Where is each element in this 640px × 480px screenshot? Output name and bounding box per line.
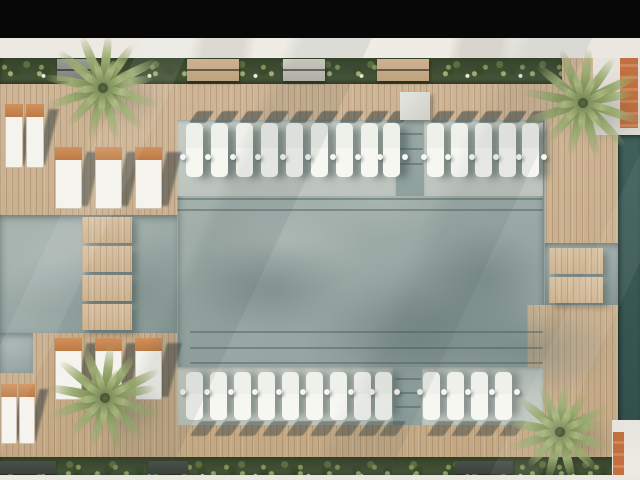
side-table bbox=[394, 389, 400, 395]
palm-crown-center bbox=[98, 83, 108, 93]
pool-step-edge bbox=[190, 362, 543, 364]
pool-lounger bbox=[210, 372, 227, 420]
side-table bbox=[489, 389, 495, 395]
stepping-platform bbox=[82, 304, 132, 330]
side-table bbox=[493, 154, 499, 160]
side-table bbox=[276, 389, 282, 395]
side-table bbox=[205, 154, 211, 160]
pool-water-left-edge bbox=[0, 333, 33, 373]
lounge-chair bbox=[95, 147, 122, 209]
pool-lounger bbox=[423, 372, 440, 420]
pool-step-edge bbox=[190, 347, 543, 349]
pool-lounger bbox=[375, 372, 392, 420]
side-table bbox=[230, 154, 236, 160]
planter-box bbox=[0, 461, 56, 474]
pool-step-edge bbox=[397, 163, 423, 165]
side-table bbox=[465, 389, 471, 395]
stepping-platform bbox=[82, 275, 132, 301]
pool-lounger bbox=[211, 123, 228, 177]
pool-step-edge bbox=[395, 406, 421, 408]
pool-lounger bbox=[236, 123, 253, 177]
chair-headrest bbox=[1, 384, 17, 397]
side-table bbox=[228, 389, 234, 395]
palm-tree bbox=[43, 336, 167, 460]
pool-lounger bbox=[336, 123, 353, 177]
planter-box bbox=[148, 461, 188, 474]
pool-lounger bbox=[475, 123, 492, 177]
pool-lounger bbox=[354, 372, 371, 420]
stepping-platform bbox=[82, 217, 132, 243]
side-table bbox=[348, 389, 354, 395]
stepping-platform bbox=[549, 277, 603, 303]
pool-lounger bbox=[261, 123, 278, 177]
palm-crown-center bbox=[100, 393, 110, 403]
palm-crown-center bbox=[555, 427, 565, 437]
side-table bbox=[441, 389, 447, 395]
palm-tree bbox=[41, 26, 165, 150]
bench-seam bbox=[283, 69, 325, 71]
chair-headrest bbox=[19, 384, 35, 397]
marble-walkway-bottom bbox=[0, 475, 640, 480]
pool-lounger bbox=[447, 372, 464, 420]
planter-bench bbox=[187, 59, 239, 81]
pool-lounger bbox=[234, 372, 251, 420]
lounge-chair bbox=[5, 104, 23, 168]
side-table bbox=[300, 389, 306, 395]
pool-lounger bbox=[311, 123, 328, 177]
pool-lounger bbox=[499, 123, 516, 177]
pool-lounger bbox=[427, 123, 444, 177]
side-table bbox=[330, 154, 336, 160]
palm-crown-center bbox=[578, 98, 588, 108]
lounge-chair bbox=[1, 384, 17, 444]
stepping-platform bbox=[549, 248, 603, 274]
side-table bbox=[469, 154, 475, 160]
side-table bbox=[355, 154, 361, 160]
pool-step-edge bbox=[397, 148, 423, 150]
side-table bbox=[180, 389, 186, 395]
side-table bbox=[252, 389, 258, 395]
lounge-chair bbox=[19, 384, 35, 444]
lounge-chair bbox=[135, 147, 162, 209]
pool-lounger bbox=[282, 372, 299, 420]
side-table bbox=[445, 154, 451, 160]
chair-headrest bbox=[5, 104, 23, 117]
pool-aerial-render bbox=[0, 0, 640, 480]
pool-lounger bbox=[361, 123, 378, 177]
bench-seam bbox=[377, 69, 429, 71]
side-table bbox=[324, 389, 330, 395]
pool-step-edge bbox=[190, 331, 543, 333]
pool-lounger bbox=[258, 372, 275, 420]
side-table bbox=[180, 154, 186, 160]
palm-tree bbox=[519, 39, 640, 167]
side-table bbox=[369, 389, 375, 395]
pool-entry-steps-top bbox=[396, 120, 424, 196]
lounge-chair bbox=[55, 147, 82, 209]
pool-lounger bbox=[471, 372, 488, 420]
side-table bbox=[402, 154, 408, 160]
pool-lounger bbox=[330, 372, 347, 420]
stepping-platform bbox=[82, 246, 132, 272]
planter-bench bbox=[283, 59, 325, 81]
pool-lounger bbox=[186, 123, 203, 177]
pool-lounger bbox=[186, 372, 203, 420]
side-table bbox=[377, 154, 383, 160]
pool-lounger bbox=[383, 123, 400, 177]
letterbox-bar bbox=[0, 0, 640, 38]
pool-step-edge bbox=[397, 133, 423, 135]
reflecting-channel bbox=[618, 135, 640, 425]
side-table bbox=[255, 154, 261, 160]
pool-step-edge bbox=[177, 209, 543, 211]
side-table bbox=[417, 389, 423, 395]
bench-seam bbox=[187, 69, 239, 71]
side-table bbox=[305, 154, 311, 160]
side-table bbox=[280, 154, 286, 160]
pool-lounger bbox=[306, 372, 323, 420]
side-table bbox=[204, 389, 210, 395]
side-table bbox=[421, 154, 427, 160]
pool-lounger bbox=[286, 123, 303, 177]
pool-step-edge bbox=[395, 378, 421, 380]
palm-tree bbox=[504, 376, 616, 480]
planter-bench bbox=[377, 59, 429, 81]
towel-station bbox=[400, 92, 430, 120]
pool-step-edge bbox=[177, 198, 543, 200]
pool-lounger bbox=[451, 123, 468, 177]
